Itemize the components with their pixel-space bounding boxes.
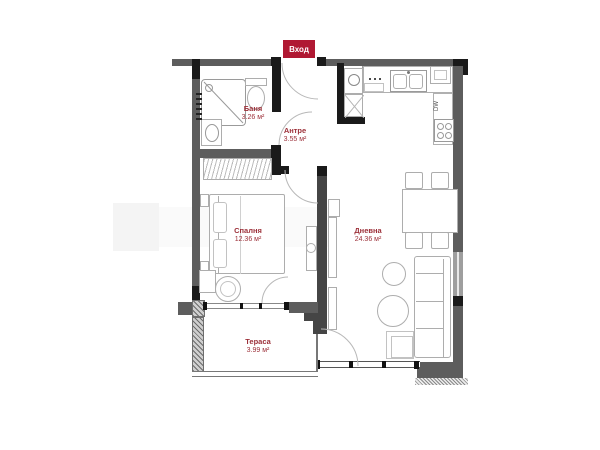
window-right <box>453 252 463 296</box>
knob-icon <box>379 78 381 80</box>
wall-corner-L-vertical <box>313 321 327 334</box>
hatch-strip-bottom <box>415 378 468 385</box>
window-mullion <box>240 303 243 309</box>
sofa-cushion-line <box>416 273 443 274</box>
room-area: 12.36 м² <box>234 235 262 244</box>
shower-drain-icon <box>205 84 213 92</box>
room-name: Спалня <box>234 226 262 235</box>
door-arc-entrance <box>282 63 318 99</box>
room-label-bathroom: Баня 3.26 м² <box>242 104 265 122</box>
dining-chair <box>431 172 449 189</box>
window-mullion <box>284 302 289 310</box>
room-name: Дневна <box>354 226 381 235</box>
burner-icon <box>437 123 444 130</box>
room-area: 3.99 м² <box>245 346 271 355</box>
bedroom-desk <box>199 270 216 293</box>
sink-basin <box>409 74 423 89</box>
bathroom-sink <box>201 119 222 146</box>
window-mullion <box>382 361 386 368</box>
room-label-bedroom: Спалня 12.36 м² <box>234 226 262 244</box>
rug-inner <box>391 336 413 358</box>
wall-closet-bottom <box>337 117 365 124</box>
wall-stub-left-terrace <box>178 302 192 315</box>
wall-bathroom-hall <box>272 63 281 112</box>
desk-chair-inner <box>220 281 236 297</box>
wardrobe <box>203 158 272 180</box>
wall-bedroom-living <box>317 166 327 312</box>
sink-bowl <box>205 124 219 142</box>
sofa-cushion-line <box>416 328 443 329</box>
room-name: Баня <box>242 104 265 113</box>
dining-chair <box>405 172 423 189</box>
room-label-living: Дневна 24.36 м² <box>354 226 381 244</box>
wall-bedroom-living-cap <box>317 166 327 176</box>
kitchen-sink <box>390 70 427 92</box>
kitchen-corner-cabinet <box>430 66 451 84</box>
terrace-edge-right <box>316 334 318 372</box>
wall-stub-top-left <box>172 59 192 66</box>
wall-top-left <box>192 59 272 66</box>
nightstand <box>200 194 209 207</box>
dishwasher-label: DW <box>434 97 446 111</box>
cabinet-inner <box>434 70 447 80</box>
burner-icon <box>445 123 452 130</box>
pillow <box>213 202 227 233</box>
desk-chair <box>215 276 241 302</box>
toilet-tank <box>245 78 267 86</box>
door-arc-bedroom <box>285 170 318 203</box>
wall-top-right <box>326 59 463 66</box>
window-mullion <box>414 361 419 369</box>
dining-table <box>402 189 458 233</box>
burner-icon <box>437 132 444 139</box>
storage-cross-icon <box>345 95 364 118</box>
tv-cabinet <box>328 217 337 278</box>
window-mullion <box>259 303 262 309</box>
room-name: Тераса <box>245 337 271 346</box>
burner-icon <box>445 132 452 139</box>
faucet-icon <box>407 71 410 74</box>
sofa <box>414 256 451 358</box>
coffee-table-large <box>377 295 409 327</box>
dining-chair <box>405 232 423 249</box>
washing-machine-drum-icon <box>348 74 360 86</box>
room-label-hallway: Антре 3.55 м² <box>284 126 307 144</box>
wall-right-black-seg <box>453 296 463 306</box>
pillow <box>213 239 227 268</box>
shelf-unit <box>328 287 337 330</box>
floor-plan: Вход <box>0 0 600 450</box>
room-label-terrace: Тераса 3.99 м² <box>245 337 271 355</box>
wall-closet-left <box>337 63 344 124</box>
kitchen-drawer <box>364 83 384 92</box>
room-name: Антре <box>284 126 307 135</box>
cooktop <box>434 119 454 142</box>
terrace-wall-left <box>192 317 204 377</box>
wall-hall-bottom <box>271 166 289 174</box>
room-area: 3.26 м² <box>242 113 265 122</box>
window-mullion <box>349 361 353 368</box>
wall-bedroom-bottom-right <box>289 302 318 313</box>
knob-icon <box>374 78 376 80</box>
room-area: 24.36 м² <box>354 235 381 244</box>
washing-machine <box>344 68 363 94</box>
sofa-back-line <box>443 259 444 357</box>
entrance-badge: Вход <box>283 40 315 58</box>
terrace-edge-bottom <box>192 371 318 377</box>
window-bedroom-terrace <box>205 303 289 309</box>
watermark-blob <box>113 203 159 251</box>
wall-bedroom-top <box>199 149 272 158</box>
room-area: 3.55 м² <box>284 135 307 144</box>
rug <box>386 331 414 359</box>
knob-icon <box>369 78 371 80</box>
dishwasher-text: DW <box>434 101 440 111</box>
storage-closet <box>344 94 363 117</box>
wall-bottom-right-block <box>417 362 463 378</box>
window-mullion <box>203 302 207 310</box>
towel-radiator <box>196 92 202 120</box>
tv-cabinet-top <box>328 199 340 217</box>
dining-chair <box>431 232 449 249</box>
wall-left-cap-top <box>192 59 200 79</box>
window-living-bottom <box>318 361 420 368</box>
sofa-cushion-line <box>416 301 443 302</box>
entrance-label: Вход <box>289 45 309 54</box>
wall-post-entrance-right <box>317 57 326 66</box>
bedroom-stool <box>306 243 316 253</box>
coffee-table-small <box>382 262 406 286</box>
window-right-glass-line <box>457 252 459 296</box>
sink-basin <box>393 74 407 89</box>
door-arc-bedroom-terrace <box>262 277 288 303</box>
